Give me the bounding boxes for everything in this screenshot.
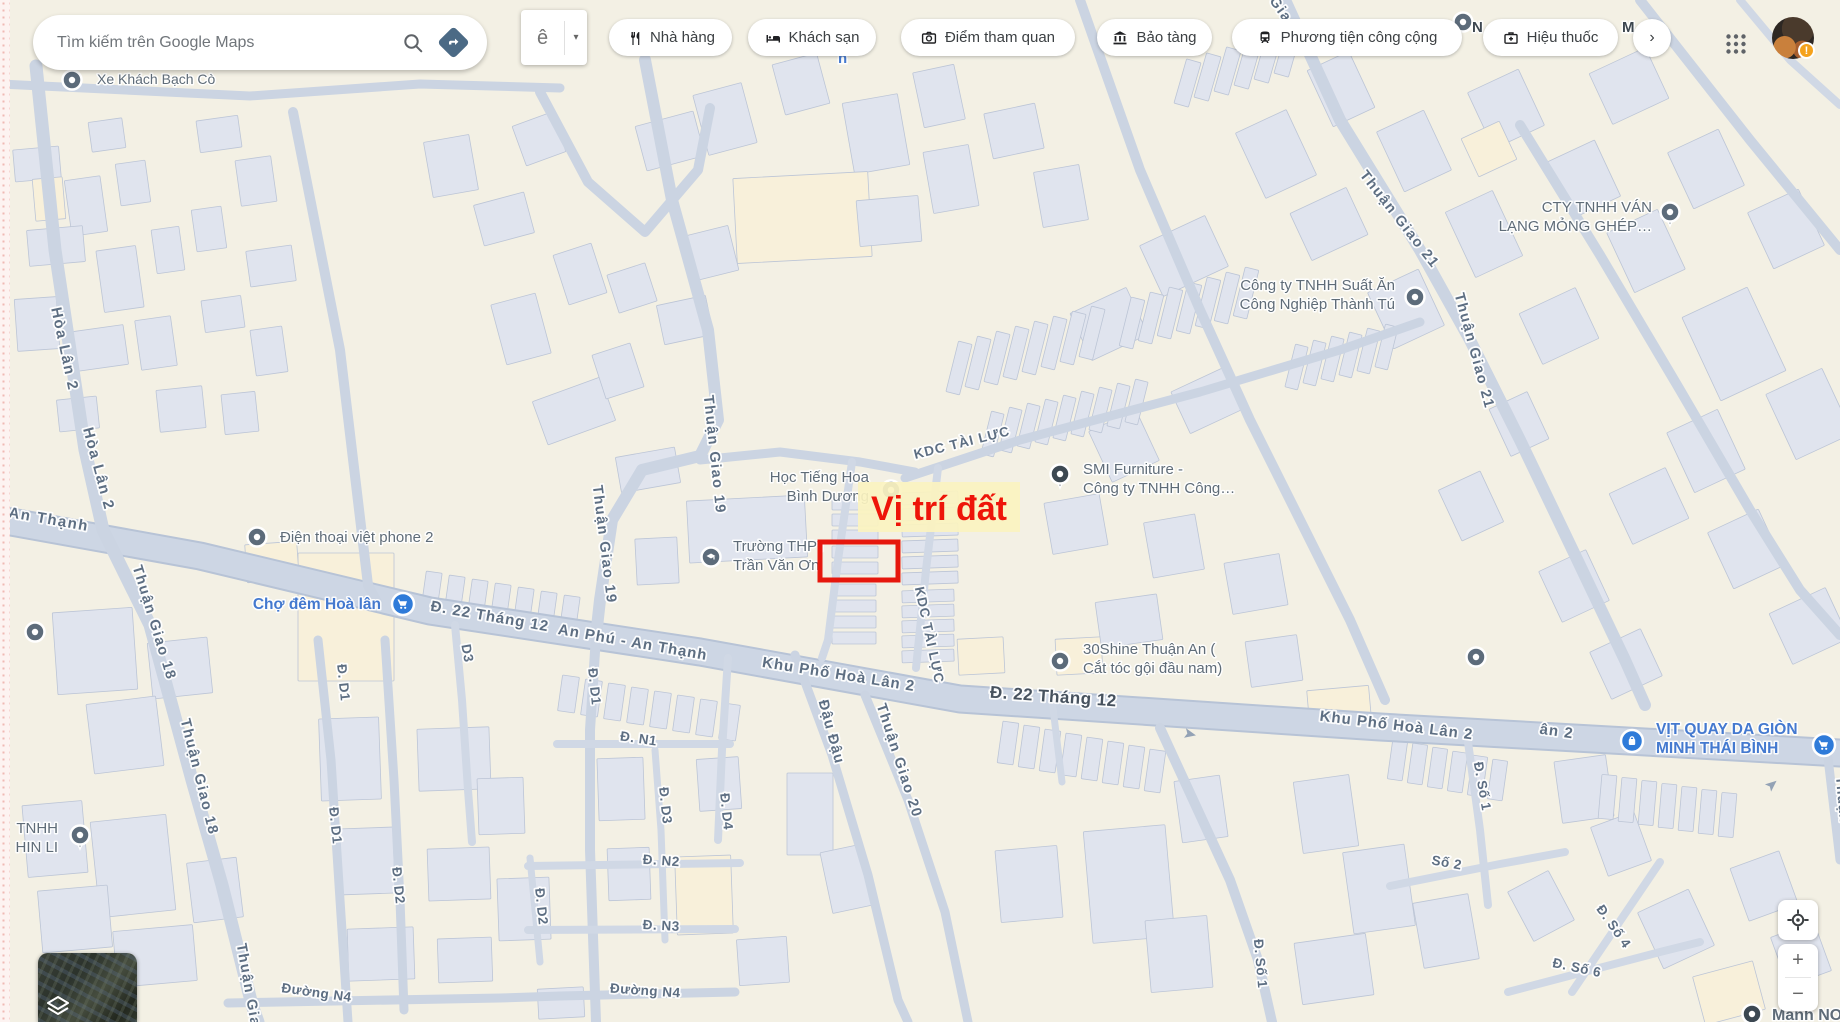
building [1293,774,1358,853]
museum-icon [1112,30,1128,46]
building [52,607,138,694]
building [235,156,277,207]
my-location-icon [1787,909,1809,931]
input-method-toggle[interactable]: ê ▾ [521,10,587,65]
ime-label: ê [521,21,565,55]
building [902,571,958,585]
chevron-down-icon: ▾ [565,32,587,43]
chip-museum[interactable]: Bảo tàng [1097,19,1212,56]
hotel-icon [765,30,781,46]
zoom-controls: + − [1778,944,1818,1011]
poi-label[interactable]: Xe Khách Bạch Cò [97,71,216,87]
chip-restaurant[interactable]: Nhà hàng [609,19,732,56]
poi-marker-dot-icon[interactable] [1051,652,1070,671]
poi-label[interactable]: Học Tiếng Hoa [770,469,870,486]
building [1294,933,1374,1004]
building [832,632,876,644]
building [37,885,112,953]
building [832,600,876,612]
road [528,863,740,866]
building [156,386,206,433]
building [246,245,297,287]
building [250,326,288,376]
building [196,115,242,153]
poi-label[interactable]: 30Shine Thuận An ( [1083,641,1215,658]
building [191,206,227,252]
annotation-text: Vị trí đất [871,490,1007,528]
building [597,757,645,821]
building [832,616,876,628]
more-categories-button[interactable]: › [1633,19,1671,57]
building [1145,915,1213,992]
building [423,134,478,197]
building [71,325,128,372]
transit-icon [1257,30,1273,46]
poi-marker-dot-icon[interactable] [248,528,267,547]
building [337,827,395,895]
building [201,295,245,332]
search-icon[interactable] [393,23,433,63]
poi-label[interactable]: Cắt tóc gội đầu nam) [1083,660,1222,677]
building [635,537,679,585]
satellite-layer-toggle[interactable] [38,953,137,1022]
poi-marker-dot-icon[interactable] [1406,288,1425,307]
poi-label[interactable]: Trường THPT [733,538,826,555]
poi-label[interactable]: Công Nghiệp Thành Tú [1240,296,1395,313]
building [1245,635,1303,688]
google-maps-app: Hòa Lân 2Hòa Lân 2An ThạnhThuận Giao 18T… [0,0,1840,1022]
page-edge-strip [0,0,10,1022]
building [96,246,144,313]
chip-label: Nhà hàng [650,29,715,46]
poi-label[interactable]: CTY TNHH VÁN [1542,199,1652,216]
poi-marker-dot-icon[interactable] [1743,1005,1762,1022]
building [736,936,789,985]
poi-marker-dot-icon[interactable] [1467,648,1486,667]
chip-transit[interactable]: Phương tiện công cộng [1232,19,1462,56]
poi-label[interactable]: Công ty TNHH Công… [1083,480,1235,497]
building [86,696,164,774]
poi-marker-bag-icon[interactable] [1621,730,1643,752]
camera-icon [921,30,937,46]
chip-label: Hiệu thuốc [1527,29,1599,46]
building [1224,554,1288,615]
apps-grid-icon [1725,33,1747,55]
street-label: Đ. N3 [642,917,680,934]
poi-marker-cart-icon[interactable] [1813,734,1835,756]
building [135,316,178,371]
building [115,160,151,206]
account-avatar[interactable]: ! [1772,17,1814,59]
chip-label: Phương tiện công cộng [1281,29,1438,46]
poi-label[interactable]: TNHH [16,820,58,837]
street-label: D3 [458,643,476,664]
building [1095,594,1163,648]
poi-marker-dot-icon[interactable] [63,71,82,90]
building [1144,514,1205,578]
chip-label: Bảo tàng [1136,29,1196,46]
building [1033,164,1088,227]
notification-badge: ! [1798,42,1815,59]
building [733,172,872,264]
chip-pharmacy[interactable]: Hiệu thuốc [1483,19,1618,56]
road [528,929,735,930]
poi-label[interactable]: Bình Dương [787,488,869,505]
street-label: Đ. N2 [642,852,680,870]
chip-camera[interactable]: Điểm tham quan [901,19,1075,56]
building [13,146,62,182]
building [856,195,922,246]
building [477,777,525,835]
poi-label[interactable]: VỊT QUAY DA GIÒN [1656,720,1798,738]
chip-hotel[interactable]: Khách sạn [748,19,876,56]
building [427,847,491,901]
building [957,637,1005,675]
chip-label: Khách sạn [789,29,860,46]
building [1413,894,1480,969]
poi-label[interactable]: HIN LI [15,839,58,856]
building [221,391,259,434]
restaurant-icon [626,30,642,46]
poi-marker-school-icon[interactable] [702,548,721,567]
poi-marker-cart-icon[interactable] [392,593,414,615]
clipped-label-fragment: N [1472,19,1483,36]
search-input[interactable] [57,34,393,52]
building [1044,494,1108,555]
building [88,118,126,152]
search-bar [33,15,487,70]
layers-icon [46,996,70,1016]
directions-icon [437,26,470,59]
chip-label: Điểm tham quan [945,29,1055,46]
building [995,845,1063,922]
poi-label[interactable]: LẠNG MỎNG GHÉP… [1499,217,1652,235]
poi-label[interactable]: Trần Văn Ơn [733,557,820,574]
directions-button[interactable] [433,23,473,63]
zoom-out-button[interactable]: − [1778,978,1818,1011]
zoom-in-button[interactable]: + [1778,944,1818,977]
pharmacy-icon [1503,30,1519,46]
my-location-button[interactable] [1778,900,1818,940]
poi-label[interactable]: Chợ đêm Hoà lân [253,596,381,613]
poi-marker-dot-icon[interactable] [26,623,45,642]
poi-label[interactable]: MINH THÁI BÌNH [1656,740,1778,757]
building [787,773,833,855]
poi-label[interactable]: SMI Furniture - [1083,461,1183,478]
poi-label[interactable]: Công ty TNHH Suất Ăn [1240,277,1395,294]
building [842,94,910,175]
building [1343,844,1416,934]
poi-label[interactable]: Điện thoại việt phone 2 [280,529,433,546]
building [151,226,185,273]
google-apps-button[interactable] [1714,22,1758,66]
building [437,937,493,983]
map-canvas[interactable]: Hòa Lân 2Hòa Lân 2An ThạnhThuận Giao 18T… [0,0,1840,1022]
